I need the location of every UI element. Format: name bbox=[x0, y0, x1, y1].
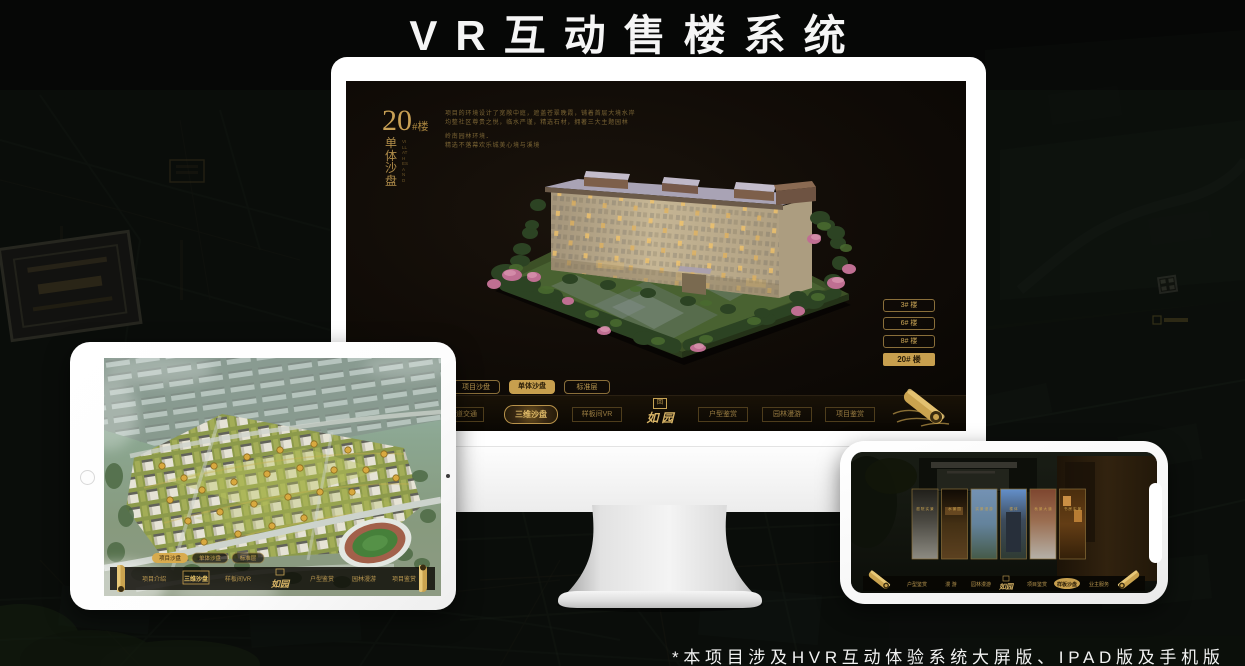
svg-text:项目沙盘: 项目沙盘 bbox=[159, 554, 182, 562]
svg-text:园林漫游: 园林漫游 bbox=[352, 575, 376, 583]
svg-text:如园: 如园 bbox=[271, 579, 291, 589]
svg-text:项目介绍: 项目介绍 bbox=[142, 575, 166, 583]
svg-text:园林漫游: 园林漫游 bbox=[971, 581, 991, 588]
svg-text:单体沙盘: 单体沙盘 bbox=[199, 554, 222, 562]
svg-text:样板间VR: 样板间VR bbox=[225, 575, 252, 583]
svg-text:如园: 如园 bbox=[999, 582, 1015, 591]
svg-text:书 房 实 景: 书 房 实 景 bbox=[1064, 506, 1082, 511]
svg-text:户型鉴赏: 户型鉴赏 bbox=[310, 575, 334, 583]
svg-text:项目鉴赏: 项目鉴赏 bbox=[392, 575, 416, 583]
svg-text:实 景 漫 游: 实 景 漫 游 bbox=[975, 506, 993, 511]
svg-text:户型鉴赏: 户型鉴赏 bbox=[907, 581, 927, 588]
svg-text:庭 院 实 景: 庭 院 实 景 bbox=[916, 506, 934, 511]
svg-text:三维沙盘: 三维沙盘 bbox=[184, 575, 208, 583]
svg-text:水 景 园: 水 景 园 bbox=[948, 506, 961, 511]
svg-text:业主服务: 业主服务 bbox=[1089, 581, 1109, 588]
svg-text:秋 景 大 道: 秋 景 大 道 bbox=[1034, 506, 1052, 511]
svg-text:标准层: 标准层 bbox=[240, 554, 257, 562]
svg-text:样板沙盘: 样板沙盘 bbox=[1057, 581, 1077, 588]
svg-text:楼 体: 楼 体 bbox=[1009, 506, 1018, 511]
svg-text:项目鉴赏: 项目鉴赏 bbox=[1027, 581, 1047, 588]
svg-text:漫 游: 漫 游 bbox=[945, 581, 956, 588]
